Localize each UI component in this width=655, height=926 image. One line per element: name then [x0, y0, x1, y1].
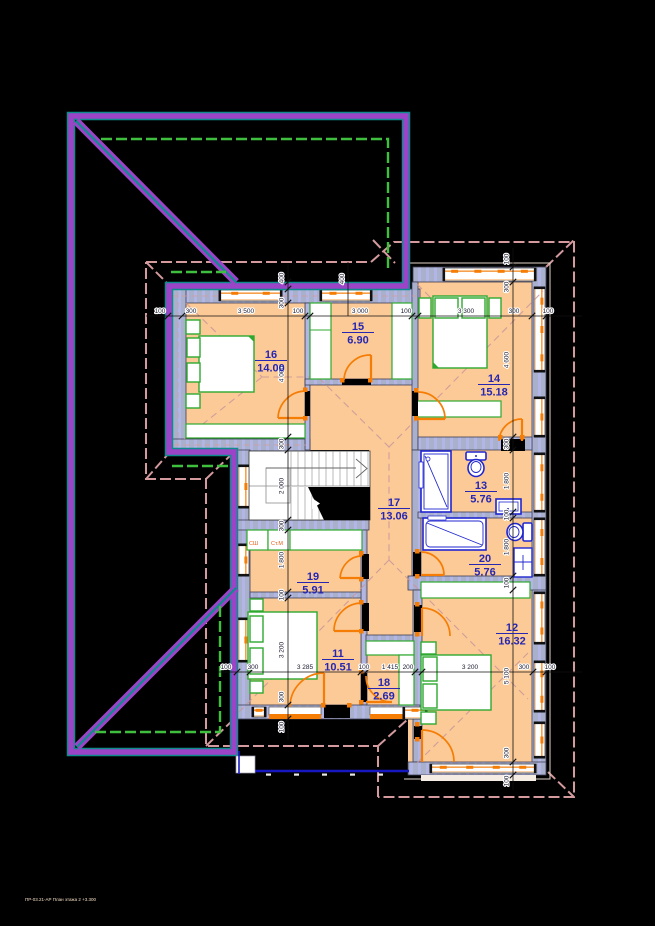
- svg-text:2.69: 2.69: [373, 691, 394, 703]
- svg-text:300: 300: [509, 308, 520, 315]
- svg-text:300: 300: [279, 438, 286, 449]
- svg-text:100: 100: [504, 577, 511, 588]
- svg-text:100: 100: [543, 308, 554, 315]
- svg-text:3 500: 3 500: [238, 308, 255, 315]
- svg-text:1 800: 1 800: [279, 551, 286, 568]
- svg-text:14.00: 14.00: [257, 363, 285, 375]
- svg-text:5.91: 5.91: [302, 585, 323, 597]
- svg-text:3 200: 3 200: [279, 641, 286, 658]
- svg-text:1 800: 1 800: [504, 472, 511, 489]
- svg-text:100: 100: [155, 308, 166, 315]
- svg-text:19: 19: [307, 571, 319, 583]
- svg-text:5 100: 5 100: [504, 667, 511, 684]
- svg-text:14: 14: [488, 373, 501, 385]
- svg-text:ПР-03.21-АР План этажа 2 +3.3: ПР-03.21-АР План этажа 2 +3.300: [25, 897, 96, 902]
- svg-text:100: 100: [293, 308, 304, 315]
- svg-text:100: 100: [504, 253, 511, 264]
- svg-text:400: 400: [279, 272, 286, 283]
- svg-text:100: 100: [221, 664, 232, 671]
- svg-text:11: 11: [332, 648, 344, 660]
- svg-text:100: 100: [359, 664, 370, 671]
- svg-text:100: 100: [279, 589, 286, 600]
- svg-text:1 800: 1 800: [504, 538, 511, 555]
- svg-text:3 300: 3 300: [458, 308, 475, 315]
- svg-text:300: 300: [279, 691, 286, 702]
- svg-text:10.51: 10.51: [324, 662, 352, 674]
- svg-text:400: 400: [339, 273, 346, 284]
- svg-text:1 415: 1 415: [382, 664, 399, 671]
- svg-text:15: 15: [352, 321, 364, 333]
- svg-text:Cт.M: Cт.M: [271, 541, 283, 547]
- svg-text:5.76: 5.76: [470, 494, 491, 506]
- svg-text:16.32: 16.32: [498, 636, 526, 648]
- svg-text:3 000: 3 000: [352, 308, 369, 315]
- svg-text:3 285: 3 285: [297, 664, 314, 671]
- svg-text:18: 18: [378, 677, 390, 689]
- svg-text:300: 300: [186, 308, 197, 315]
- svg-text:CШ: CШ: [249, 541, 258, 547]
- svg-text:300: 300: [248, 664, 259, 671]
- svg-text:300: 300: [279, 297, 286, 308]
- svg-text:300: 300: [279, 520, 286, 531]
- svg-text:100: 100: [504, 509, 511, 520]
- svg-text:4 600: 4 600: [504, 351, 511, 368]
- svg-text:300: 300: [504, 438, 511, 449]
- svg-text:200: 200: [403, 664, 414, 671]
- svg-text:5.76: 5.76: [474, 567, 495, 579]
- svg-text:100: 100: [401, 308, 412, 315]
- svg-text:13.06: 13.06: [380, 511, 408, 523]
- svg-text:100: 100: [504, 775, 511, 786]
- svg-text:16: 16: [265, 349, 277, 361]
- svg-text:17: 17: [388, 497, 400, 509]
- svg-text:13: 13: [475, 480, 487, 492]
- svg-text:300: 300: [504, 747, 511, 758]
- svg-text:15.18: 15.18: [480, 387, 508, 399]
- svg-text:20: 20: [479, 553, 491, 565]
- svg-text:3 200: 3 200: [462, 664, 479, 671]
- svg-text:6.90: 6.90: [347, 335, 368, 347]
- svg-text:300: 300: [519, 664, 530, 671]
- svg-text:300: 300: [504, 281, 511, 292]
- svg-text:100: 100: [545, 664, 556, 671]
- svg-text:2 000: 2 000: [279, 477, 286, 494]
- svg-text:12: 12: [506, 622, 518, 634]
- svg-text:100: 100: [279, 721, 286, 732]
